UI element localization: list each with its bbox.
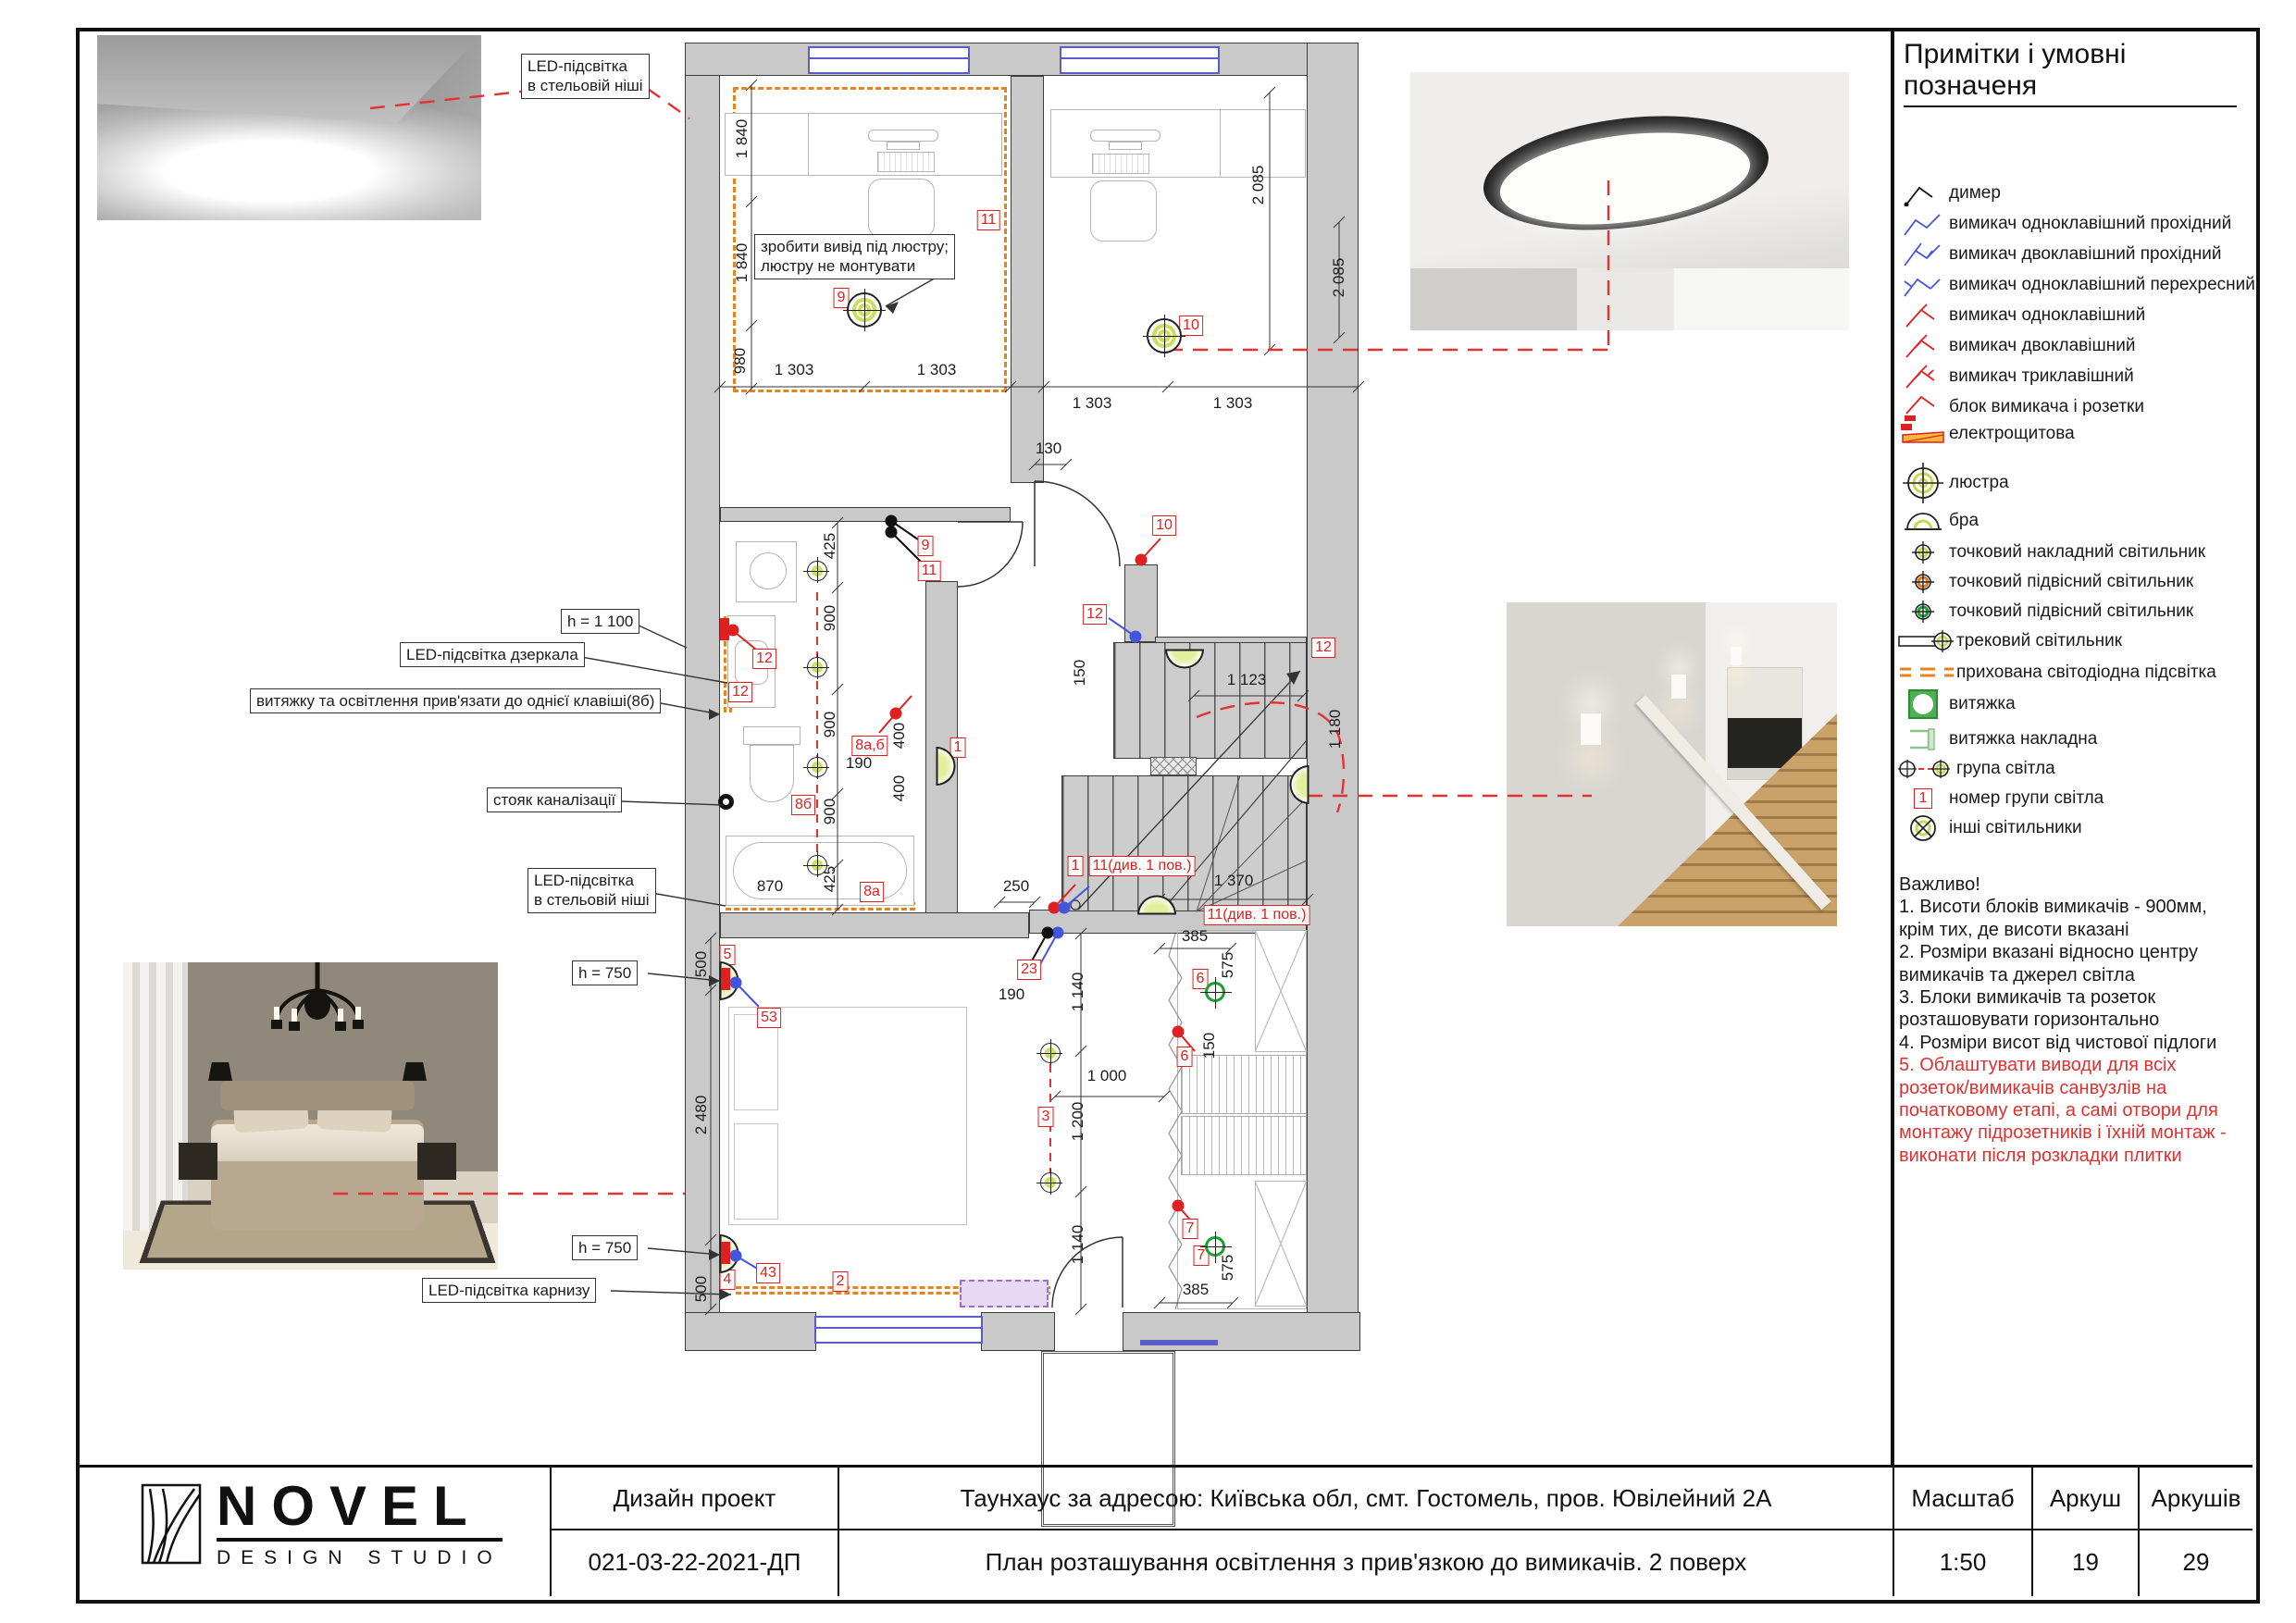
legend-divider	[1891, 30, 1894, 1467]
window-bottom-small	[1140, 1340, 1218, 1345]
chandelier-icon	[1897, 463, 1949, 503]
legend-item-dimmer: димер	[1897, 178, 2001, 209]
vent-surface-icon	[1897, 727, 1949, 751]
other-lights-icon	[1897, 813, 1949, 843]
bathtub-inner	[733, 842, 907, 899]
nightstand-left	[179, 1143, 217, 1180]
window-top-right	[1060, 46, 1220, 74]
keyboard-left	[877, 152, 935, 172]
switch-socket-block-icon	[1897, 393, 1949, 421]
callout-mirror-led: LED-підсвітка дзеркала	[400, 642, 585, 667]
callout-cornice-led: LED-підсвітка карнизу	[422, 1278, 596, 1303]
led-strip-icon	[1897, 666, 1956, 679]
legend-item-switch-1way-pass: вимикач одноклавішний прохідний	[1897, 208, 2231, 240]
legend-item-spot-pendant-green: точковий підвісний світильник	[1897, 596, 2193, 627]
wardrobe-shelf-1	[1181, 1055, 1307, 1114]
legend-item-track-light: трековий світильник	[1897, 626, 2122, 657]
sconce-2	[1671, 675, 1686, 699]
window-bottom	[814, 1316, 983, 1344]
project-address: Таунхаус за адресою: Київська обл, смт. …	[839, 1468, 1893, 1529]
toilet-tank	[743, 726, 800, 745]
note-4: 4. Розміри висот від чистової підлоги	[1899, 1032, 2243, 1054]
sheet-label: Аркуш	[2033, 1468, 2138, 1529]
drawing-sheet: 1 8401 8401 3031 3032 0852 0851 3031 303…	[0, 0, 2296, 1623]
toilet-bowl	[750, 745, 794, 802]
sconce-1	[1581, 713, 1601, 745]
wall-bottom-left	[685, 1312, 816, 1351]
logo-mark-icon	[139, 1481, 204, 1567]
monitor-left-base	[887, 142, 920, 150]
legend-item-electro-panel: електрощитова	[1897, 418, 2075, 450]
callout-h750-bottom: h = 750	[572, 1235, 638, 1260]
callout-vent-note: витяжку та освітлення прив'язати до одні…	[250, 688, 661, 713]
sheet-title: План розташування освітлення з прив'язко…	[839, 1530, 1893, 1593]
sconce-3	[1731, 647, 1742, 665]
niche-glow	[97, 100, 481, 220]
wall-bath-right	[925, 581, 958, 914]
legend-title: Примітки і умовні позначеня	[1904, 39, 2237, 107]
chandelier-silhouette	[262, 962, 373, 1050]
spot-pendant-green-icon	[1897, 600, 1949, 624]
note-3: 3. Блоки вимикачів та розеток розташовув…	[1899, 986, 2243, 1032]
dimmer-icon	[1897, 180, 1949, 206]
callout-sewer-riser: стояк каналізації	[487, 787, 622, 812]
pillow-bottom	[734, 1123, 778, 1220]
wall-bottom-mid	[981, 1312, 1055, 1351]
sheets-total-label: Аркушів	[2140, 1468, 2253, 1529]
curtain	[123, 962, 188, 1231]
keyboard-right	[1092, 154, 1149, 174]
logo-name: NOVEL	[217, 1479, 503, 1542]
switch-1way-cross-icon	[1897, 272, 1949, 298]
spot-pendant-orange-icon	[1897, 570, 1949, 594]
wardrobe-x-top	[1255, 930, 1307, 1052]
studio-logo: NOVEL DESIGN STUDIO	[139, 1479, 503, 1569]
spot-surface-icon	[1897, 540, 1949, 564]
group-number-icon: 1	[1897, 788, 1949, 809]
note-1: 1. Висоти блоків вимикачів - 900мм, крім…	[1899, 896, 2243, 941]
legend-item-switch-1way-cross: вимикач одноклавішний перехресний	[1897, 269, 2255, 301]
wall-top	[685, 43, 1359, 76]
callout-chandelier-note: зробити вивід під люстру; люстру не монт…	[754, 234, 955, 279]
light-group-icon	[1897, 757, 1956, 781]
photo-wall	[1410, 268, 1849, 330]
stairs-photo	[1507, 602, 1837, 926]
switch-3way-icon	[1897, 364, 1949, 390]
ceiling-lamp-photo	[1410, 72, 1849, 330]
bench-highlight	[960, 1280, 1049, 1307]
sink-basin	[735, 640, 768, 685]
chair-left	[868, 179, 935, 238]
note-5: 5. Облаштувати виводи для всіх розеток/в…	[1899, 1054, 2243, 1167]
legend-item-switch-2way: вимикач двоклавішний	[1897, 330, 2135, 362]
track-light-icon	[1897, 627, 1956, 655]
desk-right-divider	[1220, 109, 1221, 178]
notes-title: Важливо!	[1899, 873, 2243, 896]
legend-item-sconce: бра	[1897, 505, 1979, 537]
chair-right	[1090, 180, 1157, 242]
legend-item-spot-surface: точковий накладний світильник	[1897, 537, 2205, 568]
switch-1way-pass-icon	[1897, 211, 1949, 237]
pillow-top	[734, 1014, 778, 1110]
sconce-icon	[1897, 510, 1949, 532]
switch-2way-icon	[1897, 333, 1949, 359]
stairs-shaft-hatch	[1150, 757, 1197, 775]
legend-item-light-group: група світла	[1897, 753, 2055, 785]
switch-1way-icon	[1897, 303, 1949, 328]
sheet-number: 19	[2033, 1530, 2138, 1593]
doc-code-cell: 021-03-22-2021-ДП	[552, 1530, 838, 1593]
desk-left-room	[725, 113, 1002, 176]
note-2: 2. Розміри вказані відносно центру вимик…	[1899, 941, 2243, 986]
led-niche-photo	[97, 35, 481, 220]
headboard	[220, 1081, 415, 1110]
legend-item-switch-2way-pass: вимикач двоклавішний прохідний	[1897, 239, 2221, 270]
wall-left	[685, 43, 720, 1351]
wall-right	[1307, 43, 1359, 1351]
desk-right-room	[1050, 109, 1306, 178]
callout-led-niche-bath: LED-підсвітка в стельовій ніші	[527, 868, 656, 913]
legend-item-spot-pendant-orange: точковий підвісний світильник	[1897, 566, 2193, 598]
legend-item-switch-3way: вимикач триклавішний	[1897, 361, 2134, 392]
electro-panel-icon	[1897, 424, 1949, 444]
wall-lamp-left	[208, 1062, 232, 1081]
legend-item-switch-1way: вимикач одноклавішний	[1897, 300, 2145, 331]
wall-hall-step	[1124, 564, 1158, 642]
legend-notes: Важливо! 1. Висоти блоків вимикачів - 90…	[1899, 873, 2243, 1167]
callout-h1100: h = 1 100	[561, 609, 639, 634]
callout-led-niche-top: LED-підсвітка в стельовій ніші	[521, 54, 650, 99]
monitor-right-base	[1109, 142, 1142, 150]
scale-label: Масштаб	[1894, 1468, 2031, 1529]
washing-machine-drum	[750, 552, 787, 589]
wall-bedroom-top	[720, 912, 1029, 938]
monitor-right	[1090, 130, 1160, 142]
sewer-riser	[718, 794, 734, 810]
legend-item-vent-surface: витяжка накладна	[1897, 724, 2097, 755]
legend-item-chandelier: люстра	[1897, 463, 2009, 503]
wall-partition-rooms	[1011, 76, 1044, 483]
desk-left-divider	[808, 113, 809, 176]
scale-value: 1:50	[1894, 1530, 2031, 1593]
wall-lamp-right	[403, 1062, 427, 1081]
legend-item-led-strip: прихована світодіодна підсвітка	[1897, 657, 2216, 688]
legend-item-group-number: 1 номер групи світла	[1897, 783, 2104, 814]
monitor-left	[868, 130, 938, 142]
wardrobe-x-bottom	[1255, 1181, 1307, 1307]
callout-h750-top: h = 750	[572, 960, 638, 985]
sheets-total-value: 29	[2140, 1530, 2253, 1593]
doc-type-cell: Дизайн проект	[552, 1468, 838, 1529]
stairs-lower-flight	[1061, 775, 1307, 911]
vent-icon	[1897, 688, 1949, 720]
stairs-upper-flight	[1113, 642, 1307, 759]
legend-item-other-lights: інші світильники	[1897, 812, 2082, 844]
nightstand-right	[417, 1143, 456, 1180]
wardrobe-shelf-2	[1181, 1116, 1307, 1175]
window-top-left	[808, 46, 970, 74]
bedroom-photo	[123, 962, 498, 1270]
legend-item-vent: витяжка	[1897, 687, 2016, 722]
wall-bath-top	[720, 507, 1011, 522]
switch-2way-pass-icon	[1897, 242, 1949, 267]
logo-subtitle: DESIGN STUDIO	[217, 1547, 503, 1569]
